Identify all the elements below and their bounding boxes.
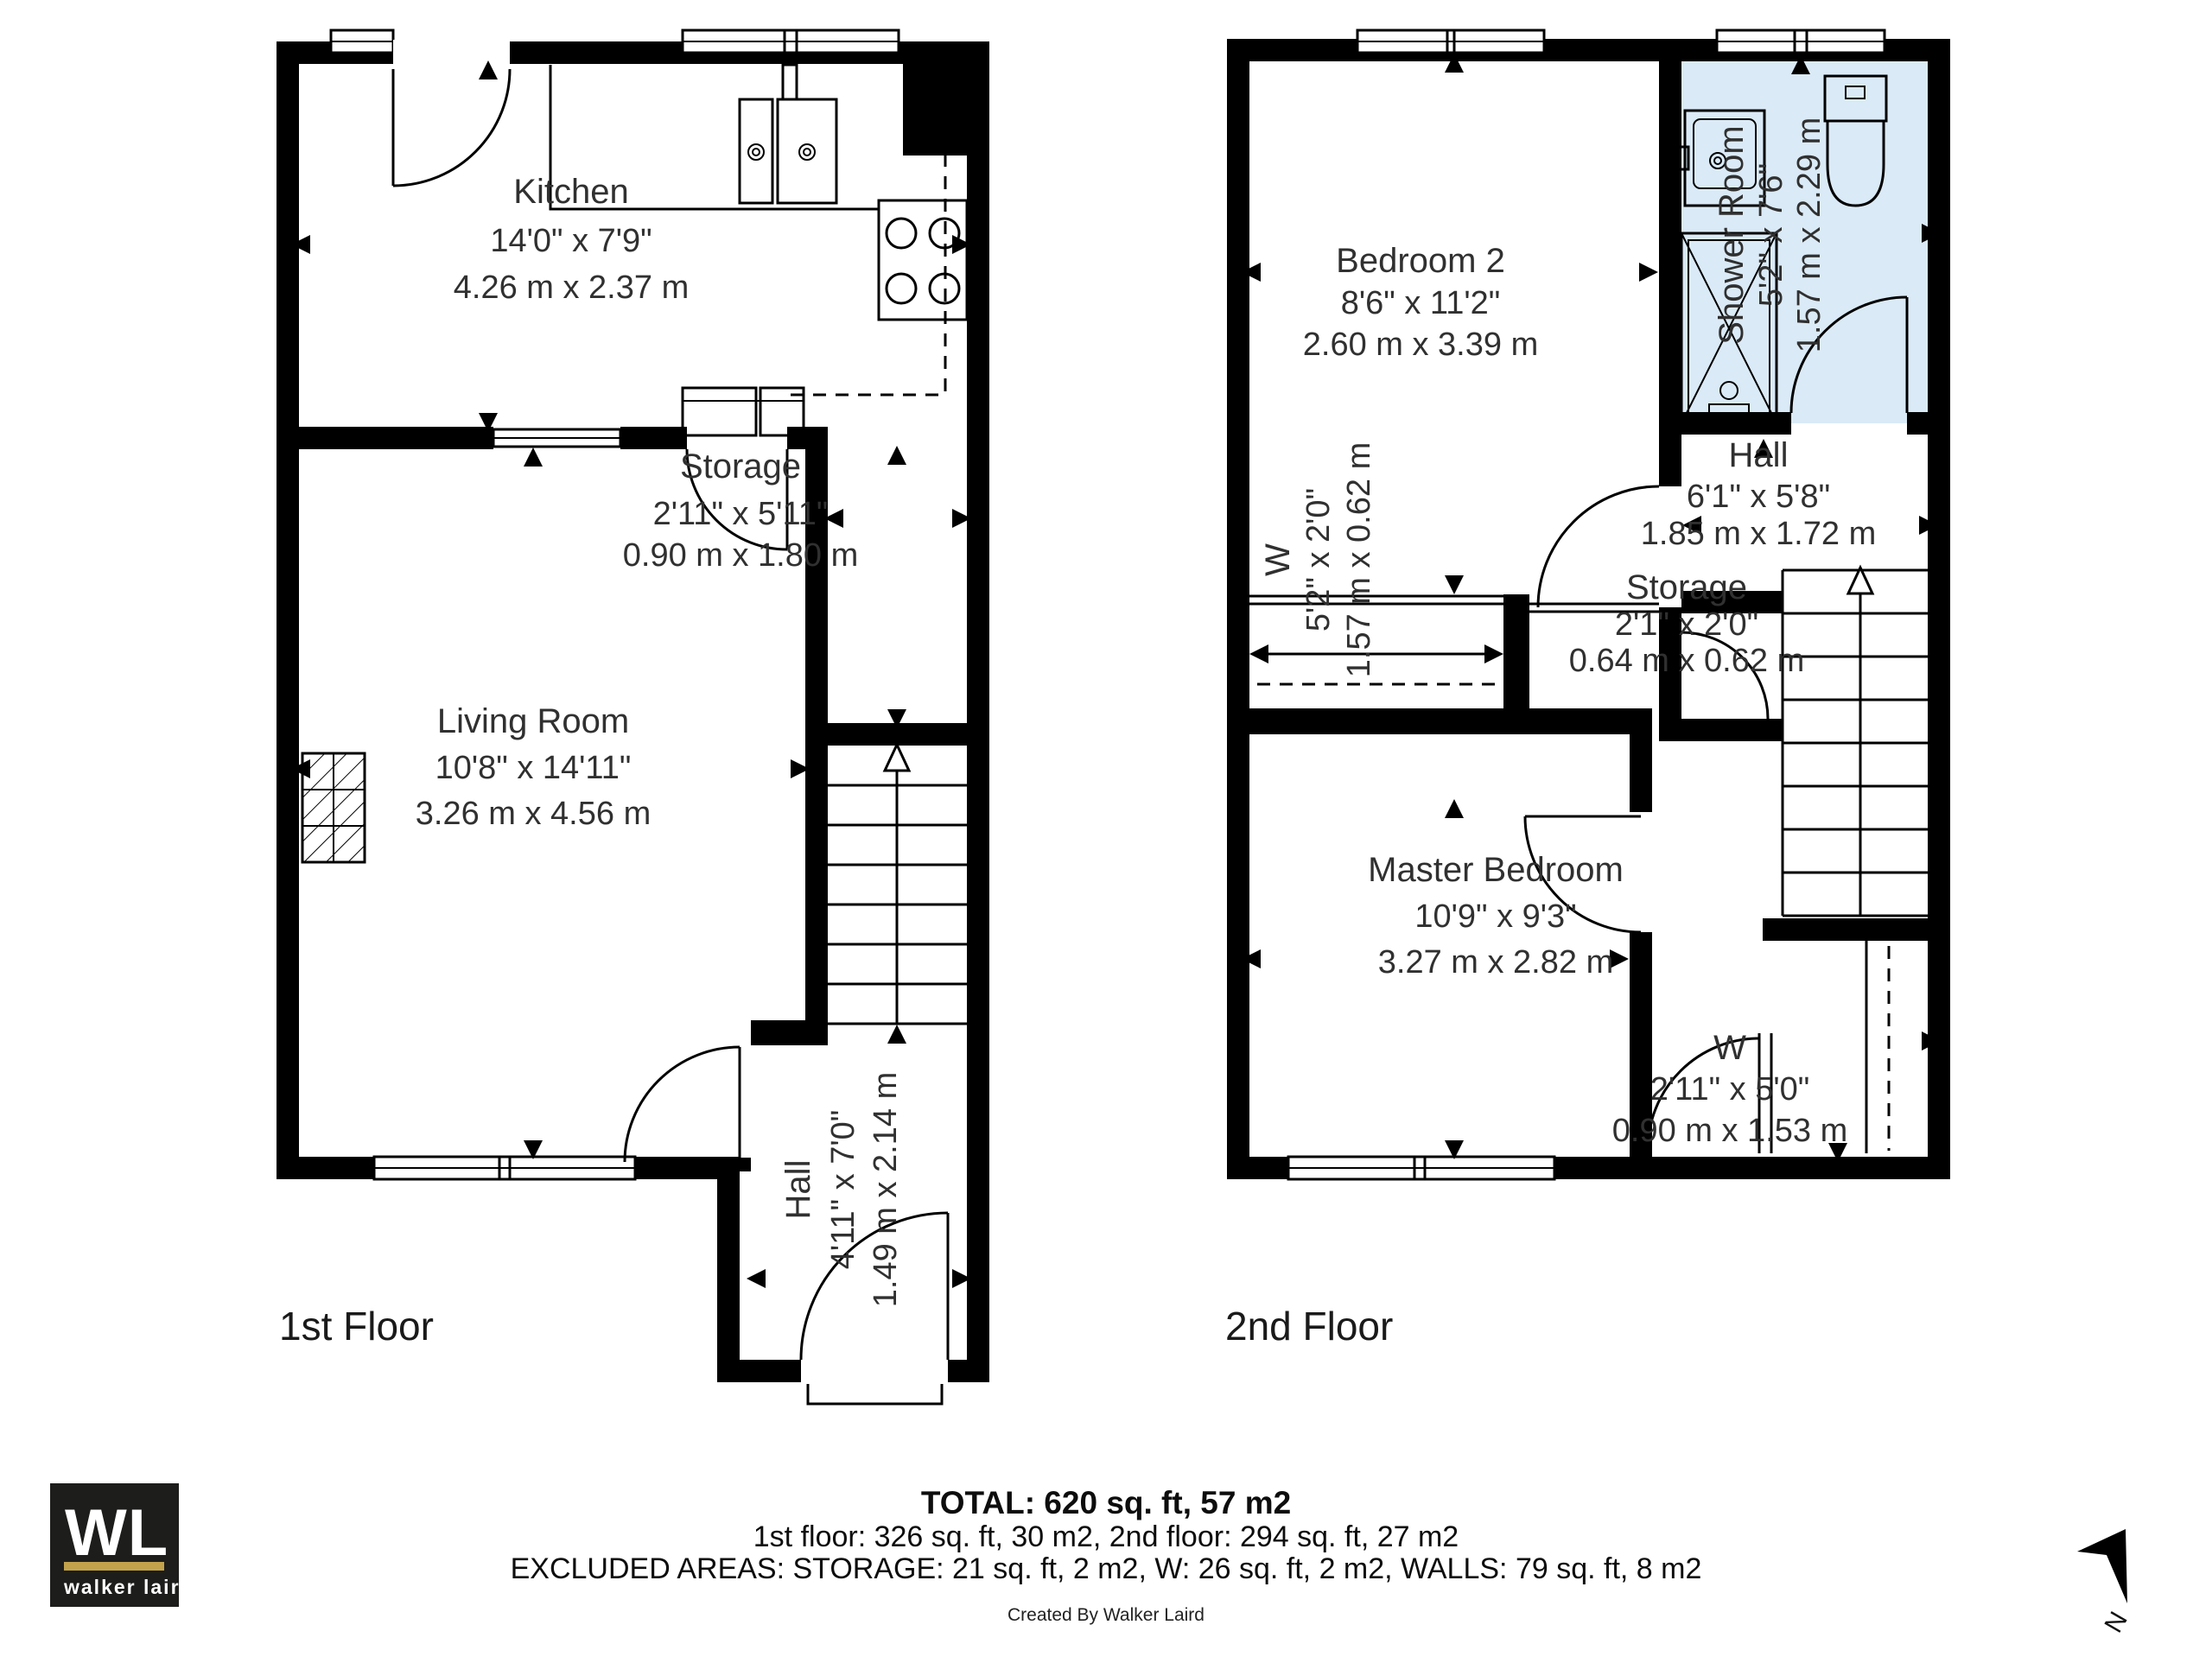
walker-laird-logo: WL walker laird [50,1483,194,1607]
room-dim-kitchen-imperial: 14'0" x 7'9" [490,223,652,259]
room-dim-wardrobe2-metric: 0.90 m x 1.53 m [1612,1113,1847,1149]
room-dim-kitchen-metric: 4.26 m x 2.37 m [454,270,689,306]
room-label-kitchen: Kitchen [513,173,628,211]
room-label-hall-2f: Hall [1729,436,1789,474]
room-dim-master-metric: 3.27 m x 2.82 m [1378,944,1613,981]
room-dim-storage-1f-imperial: 2'11" x 5'11" [653,496,829,532]
room-dim-storage-1f-metric: 0.90 m x 1.80 m [623,537,858,574]
room-dim-shower-metric: 1.57 m x 2.29 m [1791,117,1827,352]
room-dim-living-metric: 3.26 m x 4.56 m [416,796,651,832]
room-dim-wardrobe-metric: 1.57 m x 0.62 m [1341,442,1377,677]
room-dim-hall-2f-metric: 1.85 m x 1.72 m [1641,516,1876,552]
room-label-storage-2f: Storage [1626,568,1747,606]
room-label-bedroom2: Bedroom 2 [1336,242,1505,280]
north-label: N [2099,1607,2133,1637]
footer-credit: Created By Walker Laird [1007,1605,1205,1625]
north-compass: N [2077,1529,2133,1638]
second-floor-label: 2nd Floor [1225,1304,1393,1349]
logo-wordmark: walker laird [63,1576,194,1598]
room-dim-hall-2f-imperial: 6'1" x 5'8" [1687,479,1830,515]
room-label-master-bedroom: Master Bedroom [1368,851,1624,889]
floorplan-page: Kitchen 14'0" x 7'9" 4.26 m x 2.37 m Sto… [0,0,2212,1659]
footer-total: TOTAL: 620 sq. ft, 57 m2 [921,1485,1291,1520]
room-dim-hall-1f-metric: 1.49 m x 2.14 m [868,1072,904,1307]
room-label-wardrobe-2f: W [1259,543,1297,576]
room-label-hall-1f: Hall [779,1160,817,1220]
room-dim-wardrobe2-imperial: 2'11" x 5'0" [1650,1071,1809,1108]
room-dim-storage-2f-imperial: 2'1" x 2'0" [1615,606,1758,643]
second-floor-plan: Bedroom 2 8'6" x 11'2" 2.60 m x 3.39 m S… [1225,30,1950,1349]
room-dim-living-imperial: 10'8" x 14'11" [435,750,632,786]
floor-plan-canvas: Kitchen 14'0" x 7'9" 4.26 m x 2.37 m Sto… [0,0,2212,1659]
room-label-storage-1f: Storage [680,447,801,486]
room-label-wardrobe2: W [1713,1029,1746,1067]
room-dim-wardrobe-imperial: 5'2" x 2'0" [1300,488,1337,632]
logo-initials: WL [65,1496,168,1570]
fireplace [302,753,365,862]
footer-excluded-areas: EXCLUDED AREAS: STORAGE: 21 sq. ft, 2 m2… [511,1552,1702,1585]
room-dim-shower-imperial: 5'2" x 7'6" [1753,163,1789,307]
room-dim-bedroom2-metric: 2.60 m x 3.39 m [1303,327,1538,363]
first-floor-plan: Kitchen 14'0" x 7'9" 4.26 m x 2.37 m Sto… [279,30,989,1404]
room-dim-master-imperial: 10'9" x 9'3" [1414,898,1576,935]
logo-accent-bar [64,1562,164,1571]
room-label-shower-room: Shower Room [1713,125,1751,344]
north-arrow-icon [2077,1529,2127,1603]
first-floor-label: 1st Floor [279,1304,434,1349]
room-dim-storage-2f-metric: 0.64 m x 0.62 m [1569,643,1804,679]
footer-floor-areas: 1st floor: 326 sq. ft, 30 m2, 2nd floor:… [753,1520,1459,1553]
room-dim-hall-1f-imperial: 4'11" x 7'0" [825,1110,861,1269]
footer: TOTAL: 620 sq. ft, 57 m2 1st floor: 326 … [511,1485,1702,1625]
room-dim-bedroom2-imperial: 8'6" x 11'2" [1341,285,1500,321]
room-label-living-room: Living Room [437,702,629,740]
